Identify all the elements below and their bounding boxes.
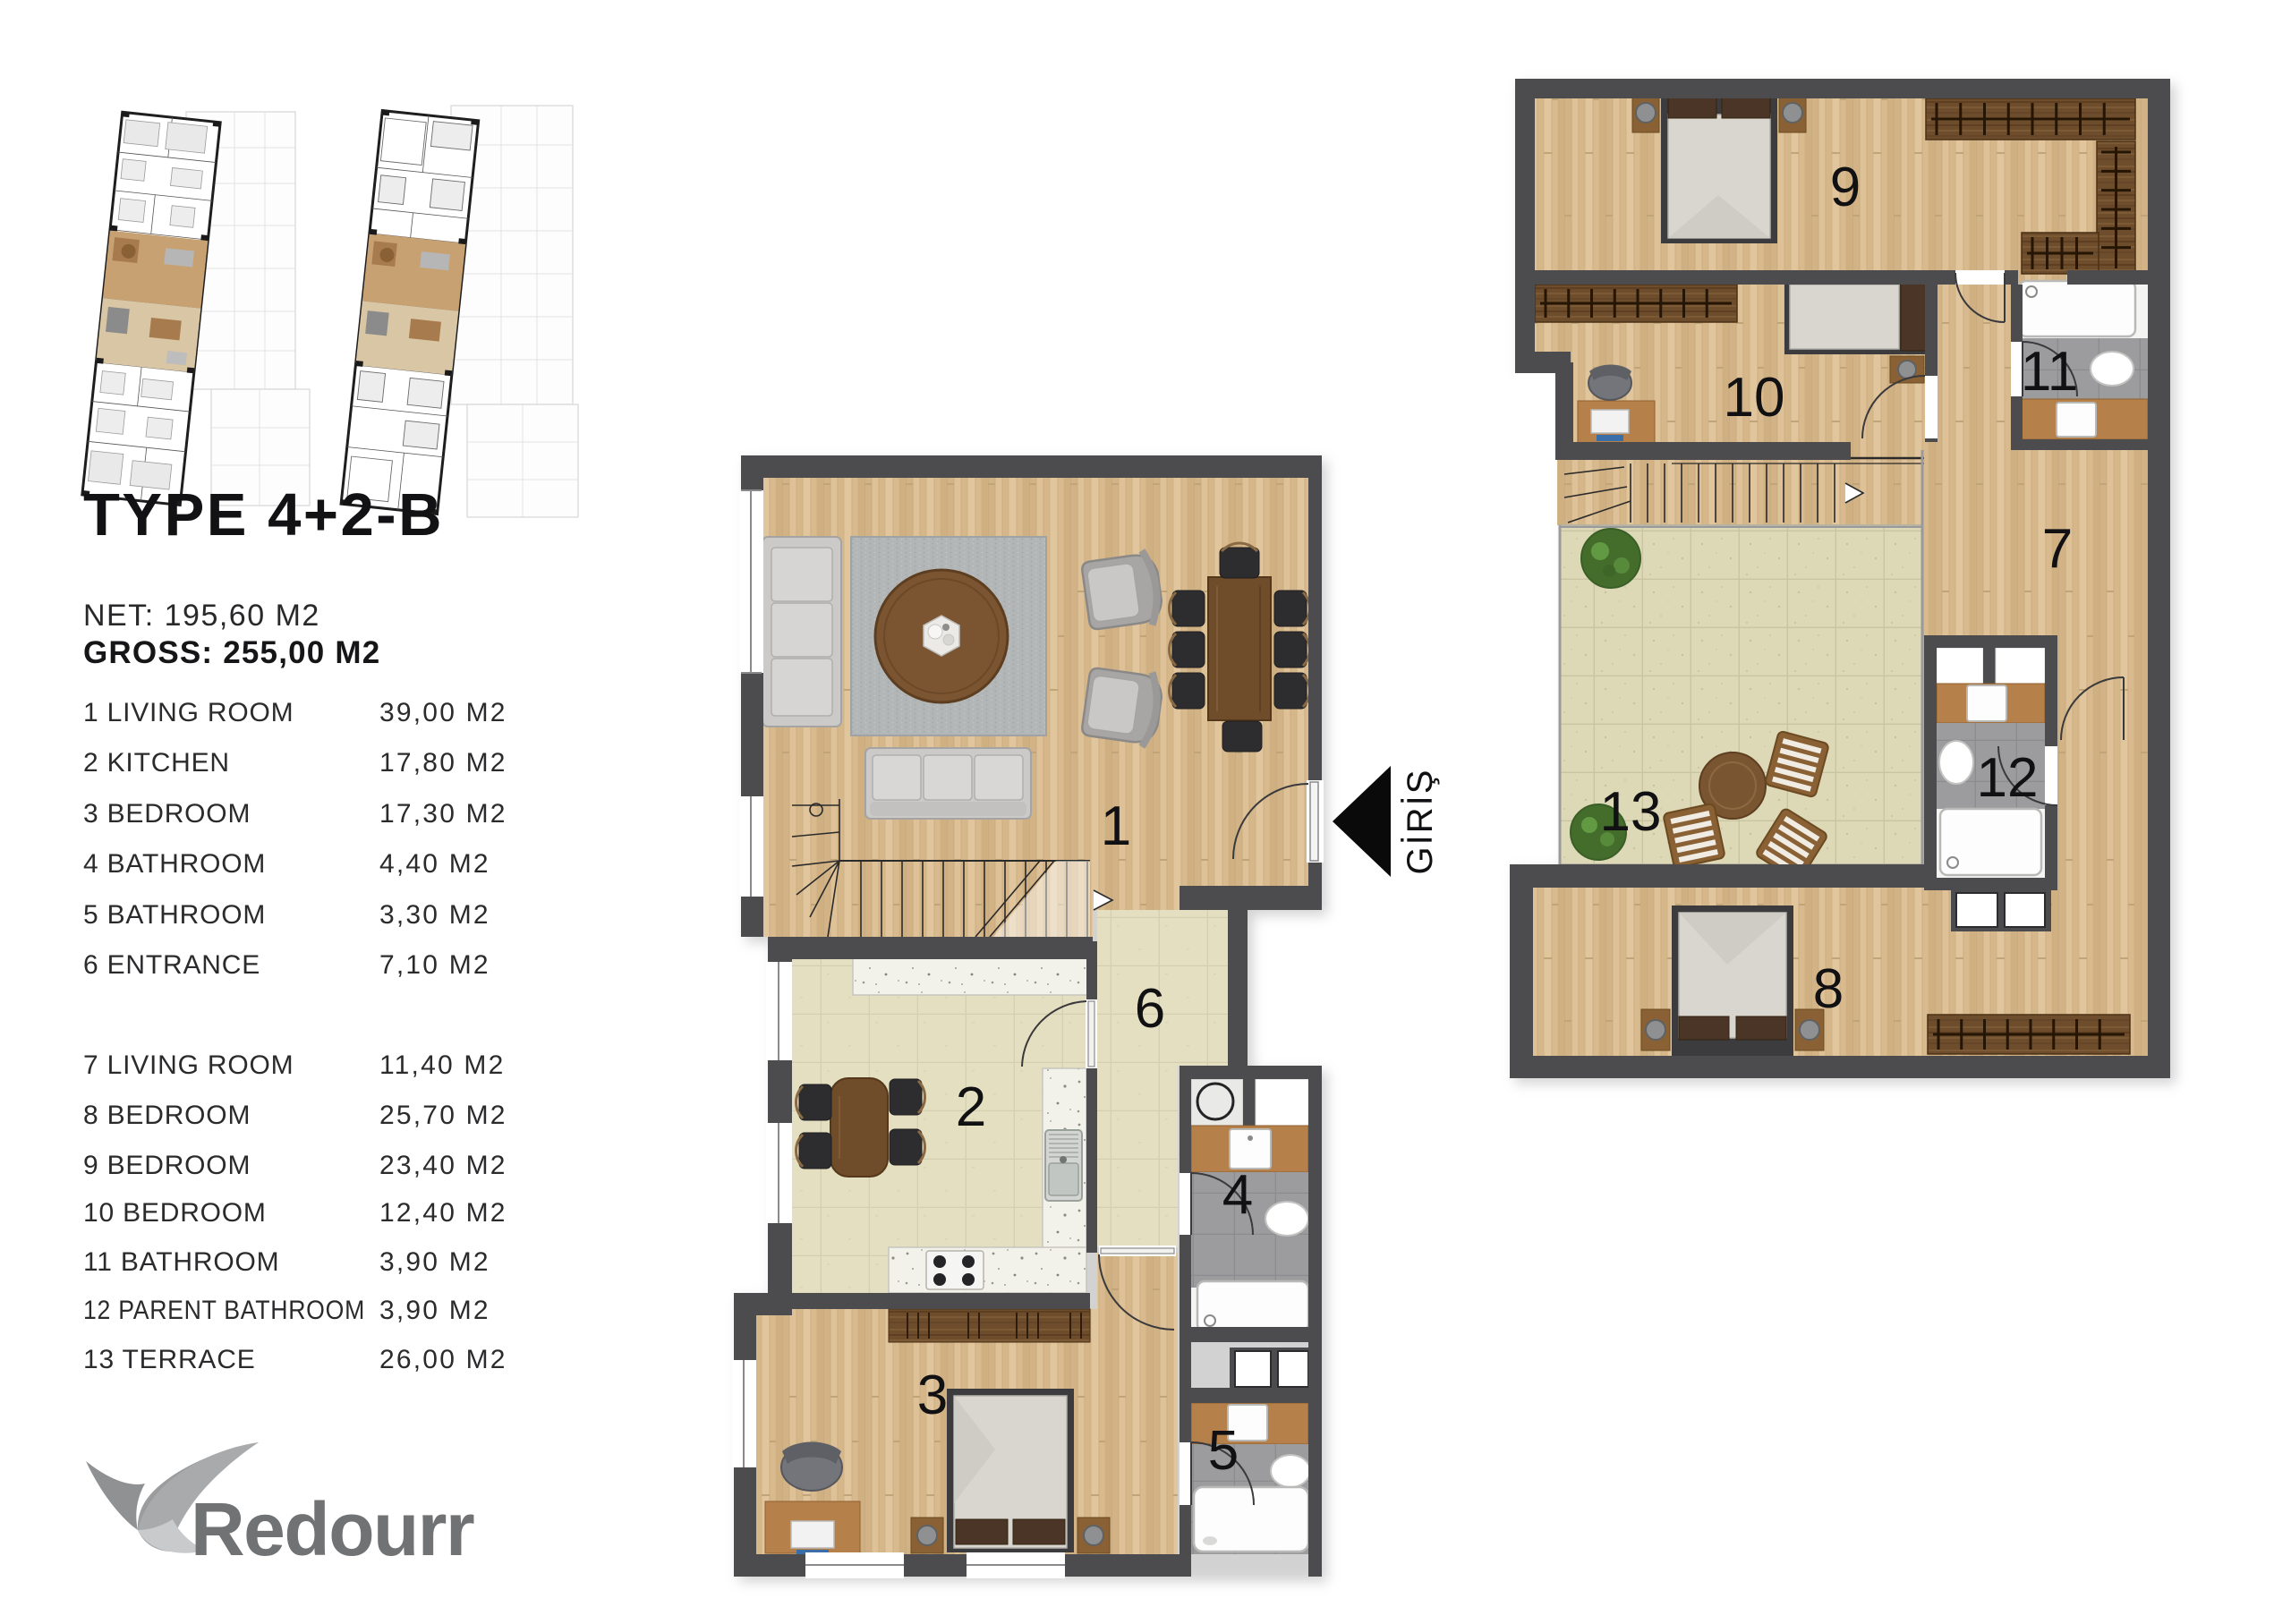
svg-text:7,10 M2: 7,10 M2	[379, 950, 490, 980]
svg-text:10 BEDROOM: 10 BEDROOM	[83, 1198, 267, 1228]
svg-text:GROSS: 255,00 M2: GROSS: 255,00 M2	[83, 635, 380, 670]
svg-text:2: 2	[956, 1076, 986, 1138]
svg-text:TYPE 4+2-B: TYPE 4+2-B	[83, 481, 444, 548]
svg-text:13: 13	[1600, 781, 1662, 843]
svg-text:8 BEDROOM: 8 BEDROOM	[83, 1101, 251, 1130]
svg-text:3,90 M2: 3,90 M2	[379, 1296, 490, 1325]
svg-text:9 BEDROOM: 9 BEDROOM	[83, 1151, 251, 1180]
svg-text:39,00 M2: 39,00 M2	[379, 698, 507, 727]
svg-text:3,90 M2: 3,90 M2	[379, 1247, 490, 1277]
svg-text:6 ENTRANCE: 6 ENTRANCE	[83, 950, 260, 980]
svg-text:23,40 M2: 23,40 M2	[379, 1151, 507, 1180]
svg-text:13 TERRACE: 13 TERRACE	[83, 1345, 256, 1374]
svg-text:11,40 M2: 11,40 M2	[379, 1050, 505, 1080]
svg-text:7: 7	[2042, 518, 2073, 580]
svg-text:GİRİŞ: GİRİŞ	[1400, 769, 1440, 875]
svg-text:3: 3	[917, 1365, 948, 1426]
svg-text:26,00 M2: 26,00 M2	[379, 1345, 507, 1374]
svg-text:9: 9	[1830, 157, 1861, 218]
svg-text:11 BATHROOM: 11 BATHROOM	[83, 1247, 279, 1277]
svg-text:12: 12	[1977, 747, 2039, 809]
svg-text:1: 1	[1101, 795, 1131, 857]
svg-text:Redourr: Redourr	[191, 1487, 474, 1571]
svg-text:25,70 M2: 25,70 M2	[379, 1101, 507, 1130]
svg-text:10: 10	[1724, 367, 1785, 429]
svg-text:NET: 195,60 M2: NET: 195,60 M2	[83, 599, 320, 633]
svg-text:12 PARENT BATHROOM: 12 PARENT BATHROOM	[83, 1296, 365, 1325]
svg-text:4,40 M2: 4,40 M2	[379, 849, 490, 879]
svg-text:8: 8	[1813, 958, 1844, 1020]
svg-text:7 LIVING ROOM: 7 LIVING ROOM	[83, 1050, 294, 1080]
svg-text:5: 5	[1208, 1420, 1239, 1482]
svg-text:4 BATHROOM: 4 BATHROOM	[83, 849, 266, 879]
svg-text:17,80 M2: 17,80 M2	[379, 748, 507, 778]
svg-text:1 LIVING ROOM: 1 LIVING ROOM	[83, 698, 294, 727]
svg-text:5 BATHROOM: 5 BATHROOM	[83, 900, 266, 930]
svg-text:3,30 M2: 3,30 M2	[379, 900, 490, 930]
svg-text:11: 11	[2021, 341, 2078, 403]
svg-text:2 KITCHEN: 2 KITCHEN	[83, 748, 230, 778]
svg-text:3 BEDROOM: 3 BEDROOM	[83, 799, 251, 829]
svg-text:12,40 M2: 12,40 M2	[379, 1198, 507, 1228]
svg-text:17,30 M2: 17,30 M2	[379, 799, 507, 829]
svg-text:6: 6	[1135, 978, 1165, 1040]
svg-text:4: 4	[1222, 1164, 1253, 1226]
